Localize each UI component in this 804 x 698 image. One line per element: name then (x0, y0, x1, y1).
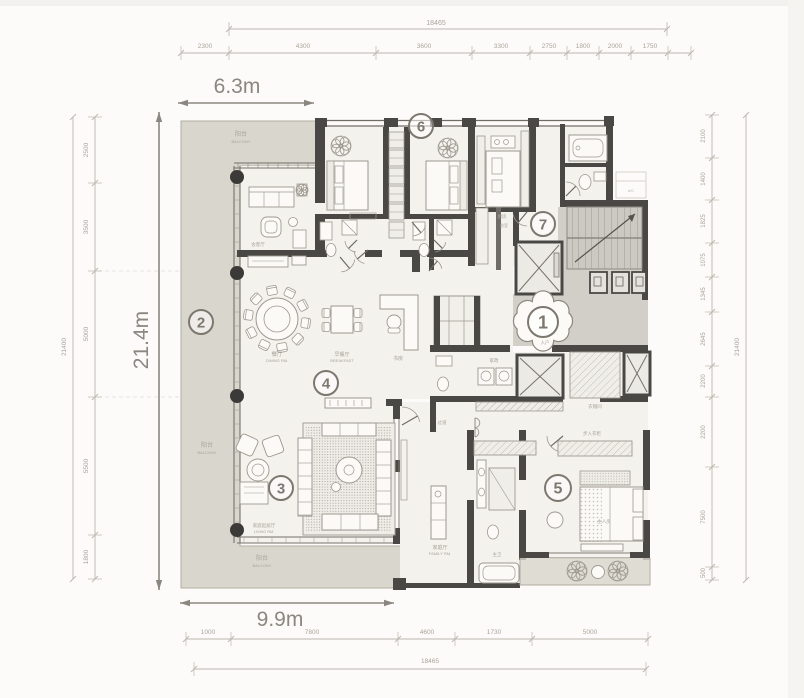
svg-text:书房: 书房 (393, 355, 403, 362)
svg-text:3300: 3300 (494, 43, 509, 50)
svg-text:1000: 1000 (201, 629, 216, 636)
svg-text:主人房: 主人房 (597, 518, 611, 525)
svg-text:21400: 21400 (734, 338, 741, 356)
svg-text:前室: 前室 (500, 222, 508, 228)
svg-text:1400: 1400 (701, 172, 707, 186)
svg-text:BALCONY: BALCONY (197, 450, 216, 455)
svg-text:2200: 2200 (701, 374, 707, 388)
svg-text:21.4m: 21.4m (130, 311, 153, 369)
svg-text:21400: 21400 (61, 338, 68, 356)
svg-text:1345: 1345 (701, 287, 707, 301)
svg-text:餐厅: 餐厅 (271, 350, 283, 358)
svg-text:家庭起居厅: 家庭起居厅 (253, 522, 276, 529)
svg-text:2: 2 (197, 314, 205, 331)
svg-text:厨房: 厨房 (498, 213, 507, 220)
svg-text:2645: 2645 (701, 332, 707, 346)
svg-text:主卫: 主卫 (493, 551, 502, 557)
svg-text:入户: 入户 (541, 339, 550, 346)
svg-text:5000: 5000 (83, 326, 90, 341)
svg-text:衣帽间: 衣帽间 (588, 403, 602, 410)
svg-text:5000: 5000 (583, 629, 598, 636)
svg-text:6.3m: 6.3m (214, 75, 261, 98)
svg-text:2000: 2000 (608, 43, 623, 50)
svg-text:1825: 1825 (701, 214, 707, 228)
svg-text:阳台: 阳台 (235, 130, 247, 138)
svg-text:1800: 1800 (576, 43, 591, 50)
svg-text:DINING RM.: DINING RM. (266, 358, 288, 363)
svg-text:2300: 2300 (198, 43, 213, 50)
svg-text:1750: 1750 (643, 43, 658, 50)
svg-text:18465: 18465 (426, 20, 446, 27)
svg-text:1075: 1075 (701, 253, 707, 267)
svg-text:4300: 4300 (296, 43, 311, 50)
svg-text:3500: 3500 (83, 219, 90, 234)
svg-text:会客厅: 会客厅 (251, 241, 265, 248)
svg-text:BREAKFAST: BREAKFAST (330, 358, 354, 363)
svg-text:7: 7 (539, 216, 547, 233)
svg-text:3: 3 (277, 480, 285, 497)
svg-text:500: 500 (701, 567, 707, 578)
svg-text:BALCONY: BALCONY (252, 563, 271, 568)
svg-text:5: 5 (554, 481, 563, 498)
svg-text:18465: 18465 (421, 658, 439, 665)
svg-text:阳台: 阳台 (256, 554, 268, 562)
svg-text:7800: 7800 (305, 629, 320, 636)
svg-text:家庭厅: 家庭厅 (432, 544, 447, 551)
svg-text:2500: 2500 (83, 142, 90, 157)
svg-text:4600: 4600 (420, 629, 435, 636)
svg-text:6: 6 (417, 118, 425, 135)
svg-text:2100: 2100 (701, 129, 707, 143)
svg-text:阳台: 阳台 (201, 441, 213, 449)
svg-text:4: 4 (322, 375, 331, 392)
svg-text:9.9m: 9.9m (257, 608, 304, 631)
svg-text:BALCONY: BALCONY (231, 139, 250, 144)
svg-text:LIVING RM.: LIVING RM. (254, 530, 274, 534)
svg-text:早餐厅: 早餐厅 (334, 351, 349, 358)
svg-text:1730: 1730 (487, 629, 502, 636)
svg-text:FAMILY RM.: FAMILY RM. (429, 551, 451, 556)
svg-text:7500: 7500 (701, 510, 707, 524)
svg-text:1800: 1800 (83, 549, 90, 564)
svg-text:3600: 3600 (417, 43, 432, 50)
svg-text:步入衣柜: 步入衣柜 (583, 430, 601, 437)
svg-text:过道: 过道 (438, 419, 447, 426)
svg-text:1: 1 (538, 312, 548, 332)
svg-text:2750: 2750 (542, 43, 557, 50)
svg-text:A/C: A/C (628, 188, 635, 193)
svg-text:2200: 2200 (701, 425, 707, 439)
svg-text:5500: 5500 (83, 458, 90, 473)
svg-text:家政: 家政 (490, 357, 499, 364)
